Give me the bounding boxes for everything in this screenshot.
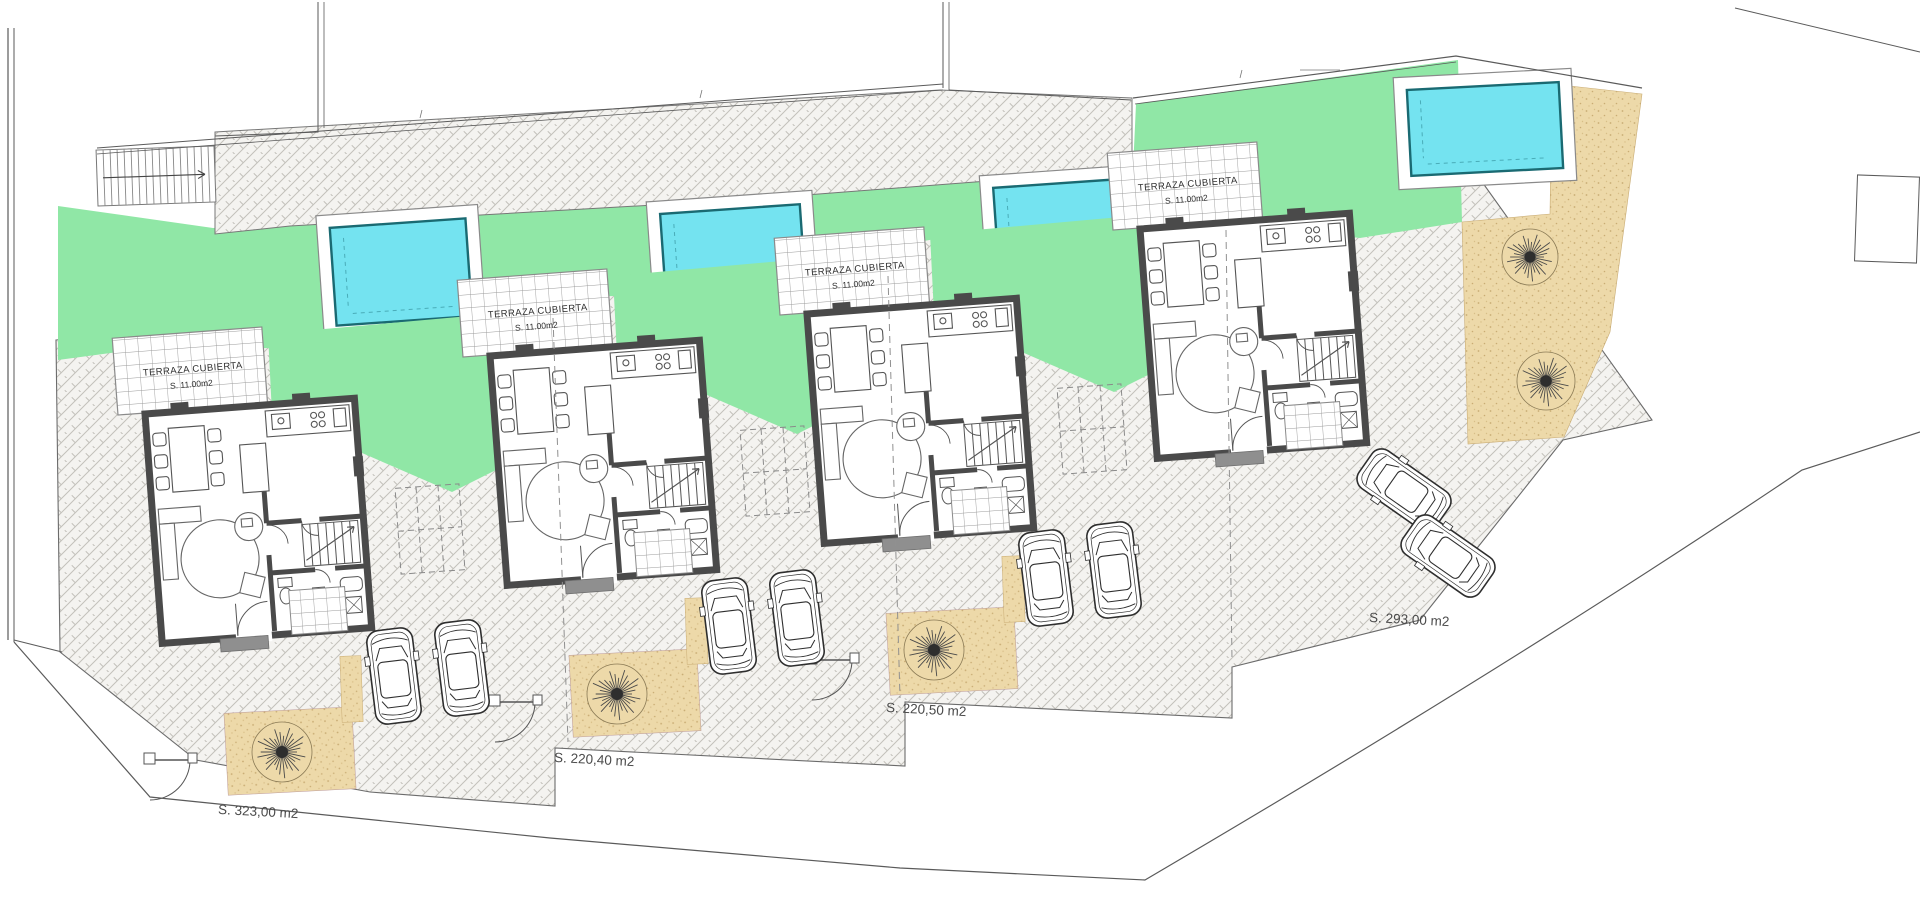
tree-4 <box>1502 229 1558 285</box>
plot-area-label-2: S. 220,40 m2 <box>554 750 635 769</box>
plot-area-label-1: S. 323,00 m2 <box>218 802 299 821</box>
tree-1 <box>252 722 312 782</box>
tree-2 <box>587 664 647 724</box>
tree-3 <box>904 620 964 680</box>
ramp <box>96 146 216 206</box>
site-plan-page: TERRAZA CUBIERTAS. 11.00m2S. 323,00 m2TE… <box>0 0 1920 920</box>
tree-5 <box>1517 352 1575 410</box>
pool-4 <box>1393 68 1577 189</box>
pool-water <box>1407 82 1563 176</box>
site-plan-drawing: TERRAZA CUBIERTAS. 11.00m2S. 323,00 m2TE… <box>0 0 1920 920</box>
pool-water <box>330 218 473 325</box>
